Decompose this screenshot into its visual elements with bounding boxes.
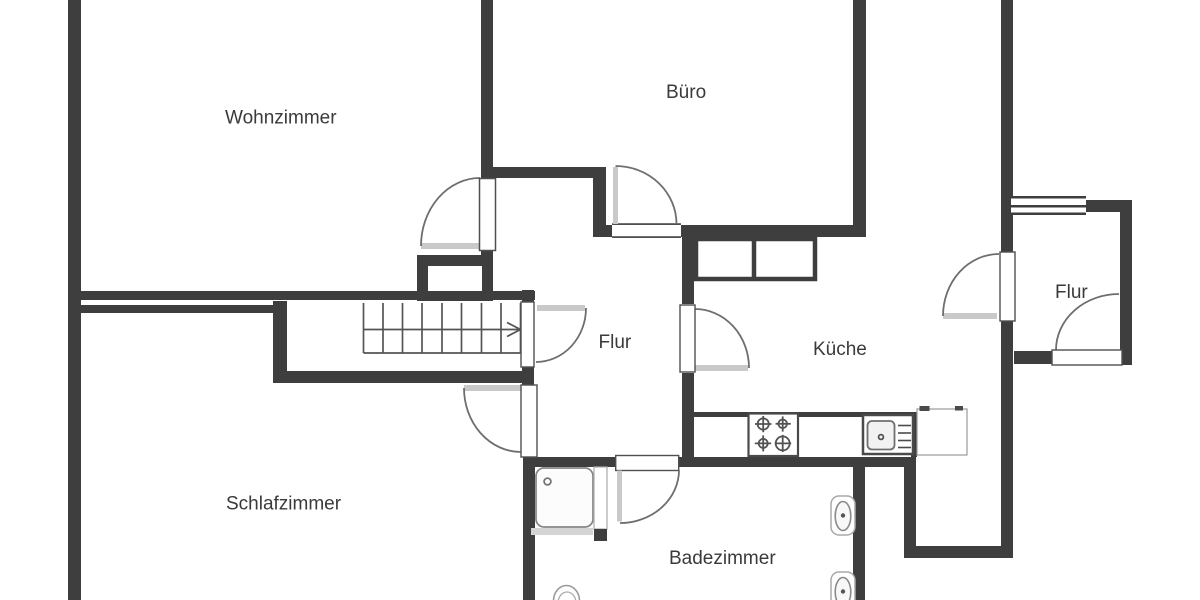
- svg-text:Flur: Flur: [1055, 282, 1088, 303]
- svg-text:Schlafzimmer: Schlafzimmer: [226, 494, 342, 515]
- svg-text:Badezimmer: Badezimmer: [669, 548, 776, 569]
- svg-text:Wohnzimmer: Wohnzimmer: [225, 108, 337, 129]
- svg-text:Küche: Küche: [813, 339, 867, 360]
- svg-text:Büro: Büro: [666, 82, 706, 103]
- svg-text:Flur: Flur: [599, 332, 632, 353]
